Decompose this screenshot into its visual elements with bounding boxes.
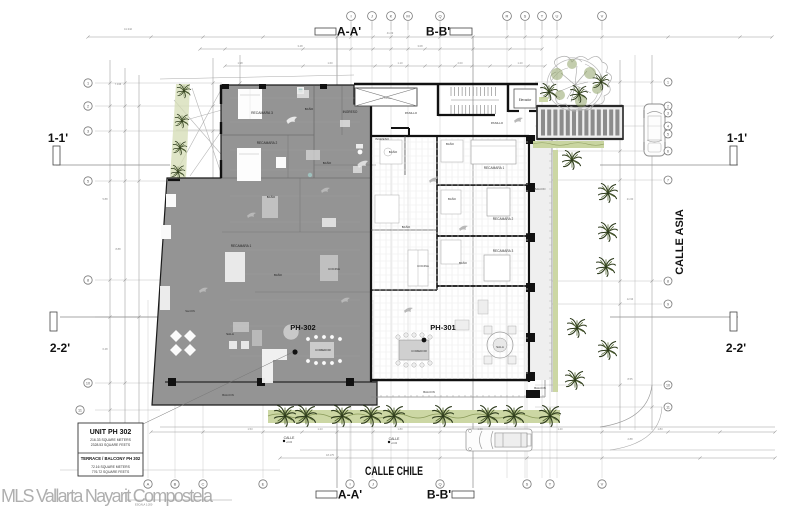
svg-text:11: 11 [666, 406, 670, 410]
svg-text:216.33 SQUARE METERS: 216.33 SQUARE METERS [90, 438, 131, 442]
svg-text:BALCON: BALCON [535, 187, 546, 191]
svg-text:1.23: 1.23 [317, 427, 323, 431]
svg-text:Lo. 100x60: Lo. 100x60 [381, 98, 393, 100]
svg-text:E: E [262, 482, 265, 487]
svg-text:A-A': A-A' [338, 488, 362, 502]
svg-text:SALA: SALA [226, 332, 234, 336]
svg-text:BAÑO: BAÑO [323, 160, 332, 165]
svg-text:UNIT PH 302: UNIT PH 302 [90, 429, 132, 436]
svg-text:BALCON: BALCON [423, 390, 435, 394]
svg-text:BAÑO: BAÑO [448, 196, 457, 201]
svg-text:K: K [390, 14, 393, 19]
svg-text:Elevador: Elevador [519, 98, 533, 102]
svg-text:Sta.CON: Sta.CON [185, 310, 195, 313]
svg-text:COMEDOR: COMEDOR [411, 349, 428, 353]
svg-text:5: 5 [87, 180, 89, 184]
svg-text:RECAMARA 3: RECAMARA 3 [251, 111, 273, 115]
svg-text:PH-302: PH-302 [290, 323, 315, 332]
svg-text:2: 2 [667, 105, 669, 109]
svg-text:CALLE: CALLE [284, 436, 295, 440]
svg-text:RECAMARA 2: RECAMARA 2 [257, 141, 278, 145]
svg-text:1.98: 1.98 [237, 61, 243, 65]
svg-text:INGRESO: INGRESO [343, 110, 358, 114]
svg-text:10: 10 [666, 384, 670, 388]
svg-text:776.72 SQUARE FEETS: 776.72 SQUARE FEETS [92, 470, 130, 474]
svg-text:72.16 SQUARE METERS: 72.16 SQUARE METERS [91, 465, 131, 469]
svg-text:BALCON: BALCON [222, 393, 234, 397]
svg-text:18.175: 18.175 [326, 453, 334, 457]
svg-text:Q: Q [438, 14, 441, 19]
svg-text:ESCALA 1:200: ESCALA 1:200 [135, 503, 153, 507]
svg-text:I: I [350, 14, 351, 19]
svg-text:S: S [526, 482, 529, 487]
svg-text:1.63: 1.63 [477, 427, 483, 431]
svg-text:Q: Q [438, 482, 441, 487]
svg-text:PASILLO: PASILLO [405, 111, 418, 115]
svg-text:2.88: 2.88 [627, 437, 633, 441]
svg-text:CALLE ASIA: CALLE ASIA [674, 209, 686, 275]
svg-text:BAÑO: BAÑO [402, 224, 411, 229]
svg-text:RECAMARA 3: RECAMARA 3 [493, 249, 514, 253]
svg-text:3: 3 [87, 130, 89, 134]
svg-text:1-1': 1-1' [48, 131, 68, 145]
svg-text:M: M [406, 14, 409, 19]
svg-text:COMEDOR: COMEDOR [315, 348, 332, 352]
svg-text:1: 1 [667, 81, 669, 85]
svg-text:BAÑO: BAÑO [446, 141, 455, 146]
svg-text:PASILLO: PASILLO [491, 121, 504, 125]
svg-text:3.48: 3.48 [297, 44, 303, 48]
svg-text:+0.00: +0.00 [286, 441, 293, 444]
svg-text:MLS Vallarta Nayarit Compostel: MLS Vallarta Nayarit Compostela [1, 486, 214, 506]
svg-text:1.10: 1.10 [397, 61, 403, 65]
svg-text:BAÑO: BAÑO [305, 106, 314, 111]
svg-text:V: V [601, 14, 604, 19]
svg-text:B-B': B-B' [427, 488, 451, 502]
svg-text:5: 5 [667, 133, 669, 137]
svg-text:+0.00: +0.00 [391, 442, 398, 445]
svg-text:1.20: 1.20 [517, 61, 523, 65]
svg-text:8.88: 8.88 [115, 247, 121, 251]
svg-text:1: 1 [87, 82, 89, 86]
svg-text:1-1': 1-1' [727, 131, 747, 145]
svg-text:RECAMARA 1: RECAMARA 1 [484, 166, 505, 170]
svg-text:INGRESO: INGRESO [375, 137, 390, 141]
svg-text:RECAMARA 1: RECAMARA 1 [231, 244, 252, 248]
svg-text:1.80: 1.80 [397, 427, 403, 431]
svg-text:RECAMARA 2: RECAMARA 2 [493, 217, 514, 221]
svg-text:10: 10 [86, 382, 90, 386]
svg-text:1.53: 1.53 [247, 427, 253, 431]
svg-text:BAÑO: BAÑO [274, 272, 283, 277]
svg-text:11: 11 [78, 409, 82, 413]
svg-text:6.48: 6.48 [102, 347, 108, 351]
svg-text:I: I [349, 482, 350, 487]
svg-text:BAÑO: BAÑO [267, 194, 276, 199]
svg-text:A-A': A-A' [337, 25, 361, 39]
svg-text:R: R [506, 14, 509, 19]
svg-text:4: 4 [667, 125, 669, 129]
svg-text:8.55: 8.55 [627, 377, 633, 381]
svg-text:3.08: 3.08 [417, 44, 423, 48]
svg-text:7.346: 7.346 [115, 82, 122, 86]
svg-text:12.93: 12.93 [627, 297, 634, 301]
svg-text:V: V [601, 482, 604, 487]
svg-text:5.88: 5.88 [102, 197, 108, 201]
svg-text:2328.53 SQUARE FEETS: 2328.53 SQUARE FEETS [91, 443, 131, 447]
svg-text:BAÑO: BAÑO [389, 149, 398, 154]
svg-text:2-2': 2-2' [50, 341, 70, 355]
svg-text:1.60: 1.60 [327, 61, 333, 65]
svg-text:2: 2 [87, 105, 89, 109]
svg-text:CALLE: CALLE [389, 437, 400, 441]
svg-text:BALCON: BALCON [534, 386, 546, 390]
svg-text:1.83: 1.83 [657, 427, 663, 431]
svg-text:TERRACE / BALCONY PH 302: TERRACE / BALCONY PH 302 [81, 456, 141, 461]
svg-text:7: 7 [667, 179, 669, 183]
svg-text:CALLE CHILE: CALLE CHILE [365, 466, 423, 478]
svg-text:PH-301: PH-301 [430, 323, 455, 332]
svg-text:COCINA: COCINA [328, 267, 340, 271]
svg-text:6: 6 [667, 150, 669, 154]
svg-text:41.09: 41.09 [387, 31, 394, 35]
svg-text:U: U [556, 14, 559, 19]
svg-text:2.00: 2.00 [457, 61, 463, 65]
svg-text:1.40: 1.40 [557, 427, 563, 431]
svg-text:41.342: 41.342 [124, 27, 132, 31]
svg-text:8: 8 [667, 280, 669, 284]
svg-text:COCINA: COCINA [417, 264, 429, 268]
svg-text:8: 8 [87, 279, 89, 283]
svg-text:B-B': B-B' [426, 25, 450, 39]
svg-text:BAÑO: BAÑO [459, 260, 468, 265]
svg-text:SALA: SALA [496, 345, 504, 349]
svg-text:3: 3 [667, 112, 669, 116]
svg-text:J: J [372, 482, 374, 487]
svg-text:S: S [524, 14, 527, 19]
svg-text:2-2': 2-2' [726, 341, 746, 355]
svg-text:9: 9 [667, 303, 669, 307]
svg-text:J: J [371, 14, 373, 19]
svg-text:21.60: 21.60 [627, 197, 634, 201]
